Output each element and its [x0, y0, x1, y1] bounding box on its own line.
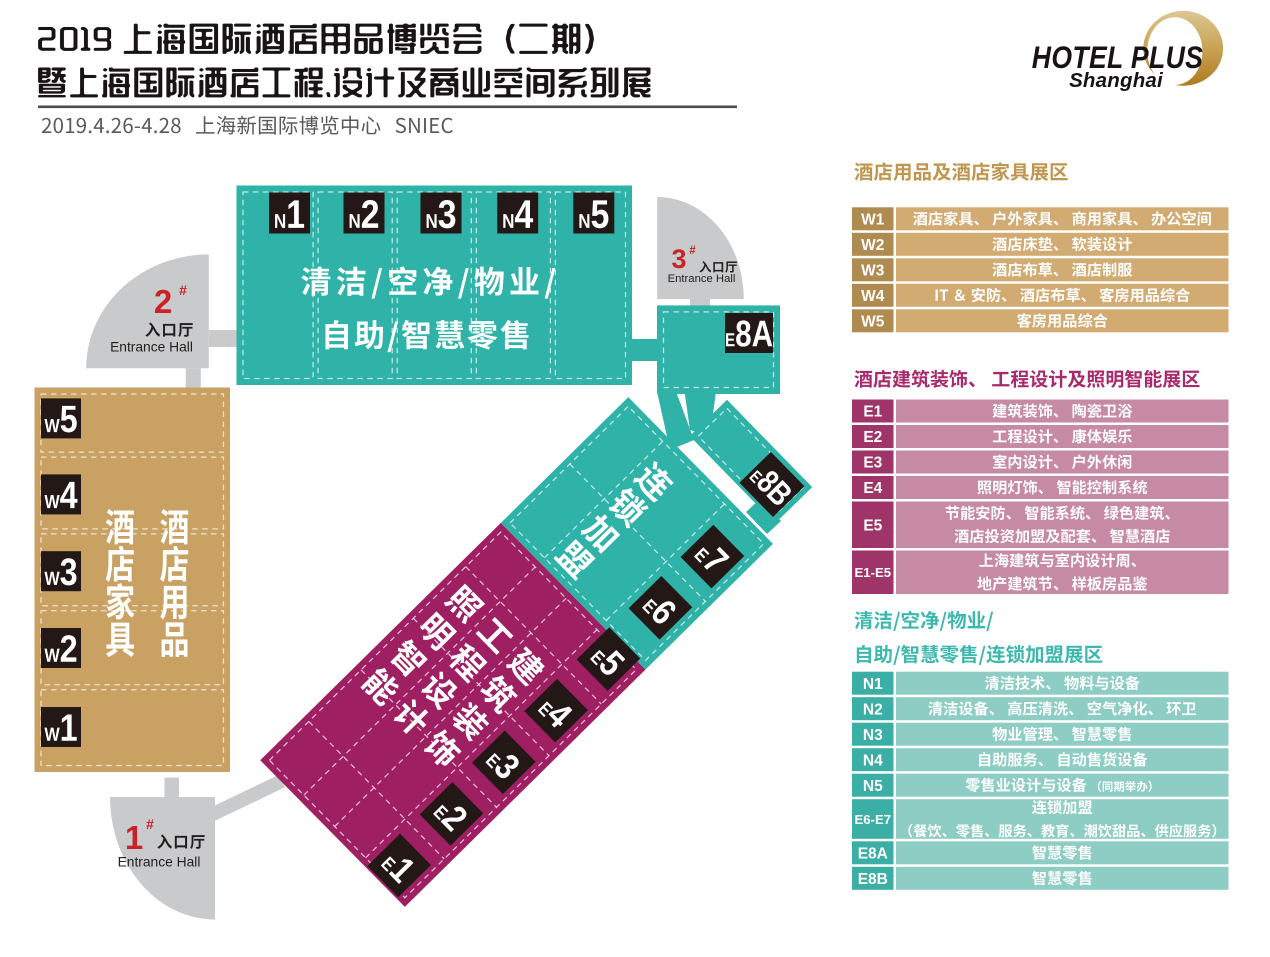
svg-text:E3: E3: [863, 455, 882, 472]
svg-text:1: 1: [125, 819, 143, 856]
svg-text:N2: N2: [863, 701, 883, 718]
svg-text:E8B: E8B: [858, 871, 888, 888]
svg-text:E5: E5: [863, 517, 882, 534]
svg-text:E1: E1: [863, 404, 882, 421]
svg-text:W3: W3: [861, 262, 885, 279]
svg-text:Entrance Hall: Entrance Hall: [110, 340, 193, 355]
svg-text:#: #: [146, 816, 154, 832]
svg-text:Shanghai: Shanghai: [1069, 69, 1164, 92]
svg-text:N4: N4: [863, 752, 883, 769]
svg-text:W4: W4: [861, 288, 885, 305]
svg-text:E1-E5: E1-E5: [854, 565, 891, 580]
svg-text:E2: E2: [863, 429, 882, 446]
svg-text:N5: N5: [863, 778, 883, 795]
svg-text:Entrance Hall: Entrance Hall: [118, 855, 201, 870]
svg-text:3: 3: [671, 244, 686, 274]
svg-text:E8A: E8A: [858, 845, 888, 862]
svg-text:N3: N3: [863, 727, 883, 744]
svg-text:E4: E4: [863, 480, 882, 497]
svg-text:W5: W5: [861, 313, 885, 330]
svg-text:2: 2: [154, 283, 172, 320]
svg-text:#: #: [179, 282, 187, 298]
svg-text:Entrance Hall: Entrance Hall: [668, 273, 736, 285]
svg-text:N1: N1: [863, 676, 883, 693]
svg-text:W1: W1: [861, 211, 885, 228]
svg-text:W2: W2: [861, 237, 884, 254]
svg-text:E6-E7: E6-E7: [854, 812, 891, 827]
svg-text:#: #: [689, 245, 696, 257]
